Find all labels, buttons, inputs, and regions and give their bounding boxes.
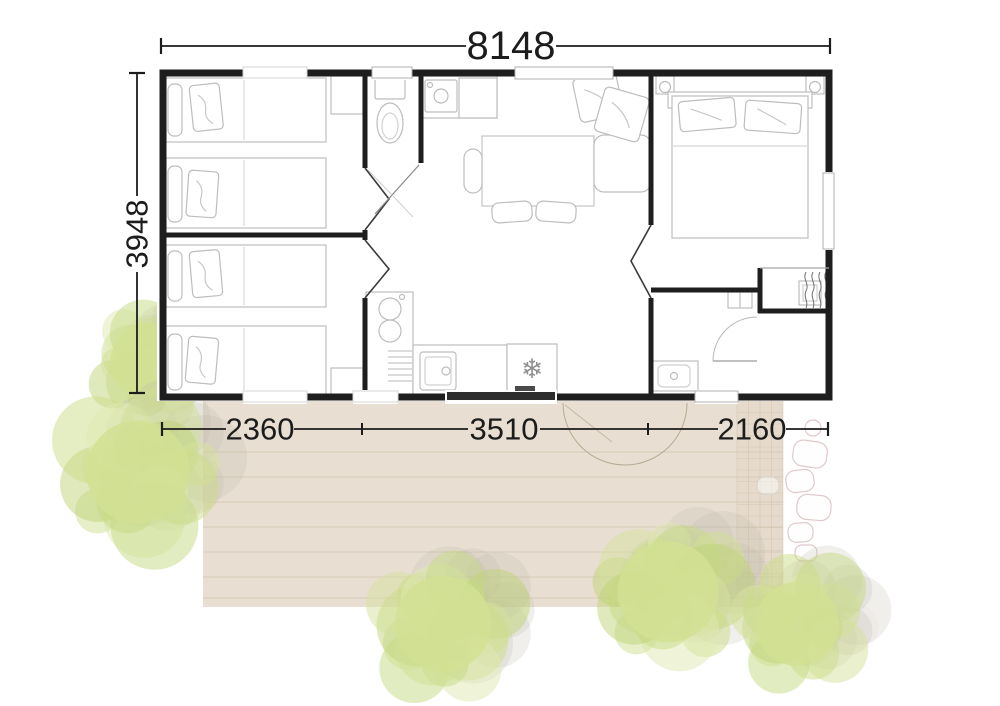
window-frame xyxy=(243,391,307,402)
window-frame xyxy=(823,173,834,249)
nightstand xyxy=(806,76,824,94)
sofa xyxy=(594,135,651,192)
toilet-cistern xyxy=(375,79,405,99)
dining-chair xyxy=(491,201,532,224)
window-frame xyxy=(243,67,307,78)
bench-seat xyxy=(464,149,482,193)
pillow xyxy=(186,170,219,218)
stone xyxy=(787,522,813,543)
dimension-segment-3-label: 2160 xyxy=(718,412,787,447)
pillow xyxy=(189,83,224,132)
bolster xyxy=(168,84,182,136)
dimension-total-width: 8148 xyxy=(161,24,830,68)
wardrobe xyxy=(331,76,363,114)
entrance-door-foot xyxy=(515,386,535,391)
dimension-total-width-label: 8148 xyxy=(467,24,556,68)
stone xyxy=(796,494,832,522)
mobile-home-plan: ❄ xyxy=(157,66,836,404)
dimension-segment-2-label: 3510 xyxy=(470,412,539,447)
floorplan-canvas: ❄ xyxy=(0,0,1000,706)
stone xyxy=(791,439,828,469)
pillow xyxy=(185,336,219,384)
dimension-bottom-segments: 2360 3510 2160 xyxy=(162,412,828,447)
toilet-bowl-inner xyxy=(382,113,398,139)
washbasin xyxy=(658,365,690,387)
stone xyxy=(785,468,815,493)
master-bedroom xyxy=(656,76,824,238)
entrance-threshold xyxy=(447,392,555,400)
bolster xyxy=(168,251,182,301)
nightstand xyxy=(656,76,674,94)
dining-chair xyxy=(535,201,576,224)
bolster xyxy=(168,166,182,222)
pillow xyxy=(189,249,223,297)
dimension-segment-1-label: 2360 xyxy=(226,412,295,447)
window-frame xyxy=(695,391,738,402)
pillow xyxy=(678,97,736,132)
dining-table xyxy=(482,136,594,206)
kitchen-upper-counter xyxy=(422,76,497,118)
wc-room xyxy=(375,79,405,143)
pillow xyxy=(744,100,802,134)
window-frame xyxy=(515,67,613,79)
floor-plan-svg: ❄ xyxy=(0,0,1000,706)
window-frame xyxy=(372,67,412,78)
stone xyxy=(757,477,779,494)
hob-unit xyxy=(459,78,497,118)
sink-basin xyxy=(425,357,451,385)
dimension-total-depth-label: 3948 xyxy=(120,200,155,269)
sink-unit xyxy=(425,80,457,112)
stone xyxy=(805,420,821,436)
snowflake-icon: ❄ xyxy=(521,354,544,385)
bolster xyxy=(168,334,182,390)
window-frame xyxy=(353,391,398,402)
